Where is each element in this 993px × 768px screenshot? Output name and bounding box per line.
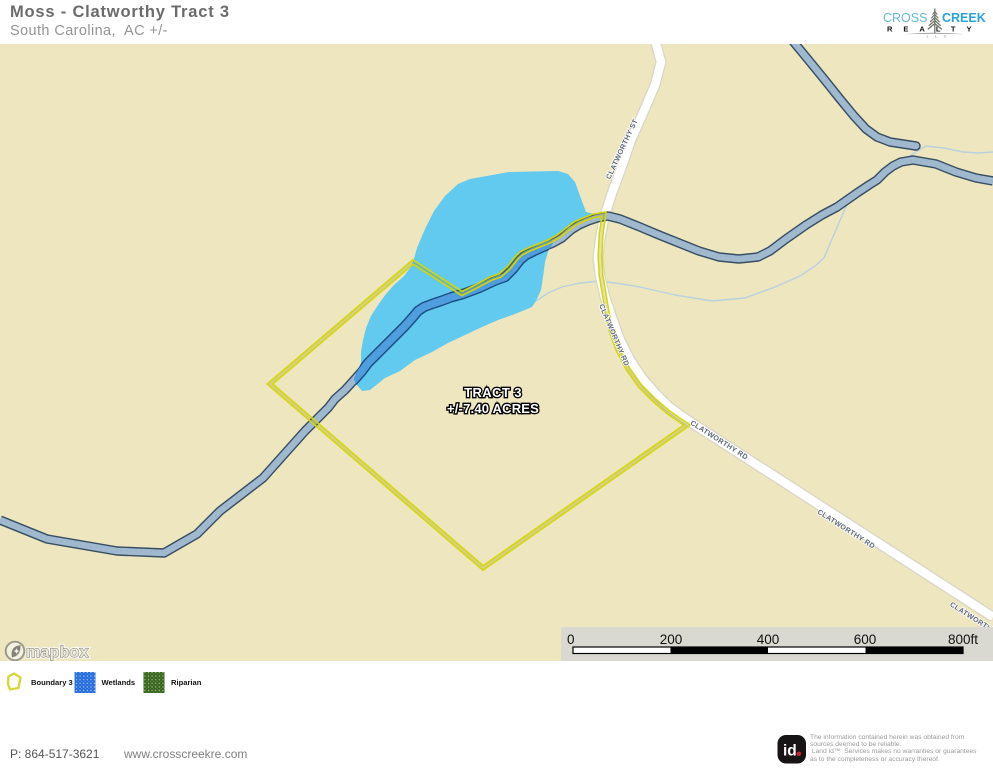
svg-text:800ft: 800ft bbox=[948, 632, 978, 647]
svg-text:0: 0 bbox=[567, 632, 575, 647]
svg-text:200: 200 bbox=[660, 632, 683, 647]
svg-text:Wetlands: Wetlands bbox=[102, 678, 136, 687]
svg-text:Riparian: Riparian bbox=[171, 678, 202, 687]
svg-text:400: 400 bbox=[757, 632, 780, 647]
svg-text:CREEK: CREEK bbox=[942, 11, 986, 25]
svg-text:id: id bbox=[783, 743, 797, 760]
svg-text:REALTY: REALTY bbox=[887, 25, 982, 34]
svg-text:+/-7.40 ACRES: +/-7.40 ACRES bbox=[447, 401, 539, 416]
svg-text:L L C: L L C bbox=[927, 35, 950, 39]
svg-text:mapbox: mapbox bbox=[26, 644, 89, 661]
svg-text:TRACT 3: TRACT 3 bbox=[464, 385, 522, 400]
svg-text:600: 600 bbox=[854, 632, 877, 647]
svg-text:Boundary 3: Boundary 3 bbox=[31, 678, 73, 687]
svg-text:CROSS: CROSS bbox=[883, 11, 927, 25]
